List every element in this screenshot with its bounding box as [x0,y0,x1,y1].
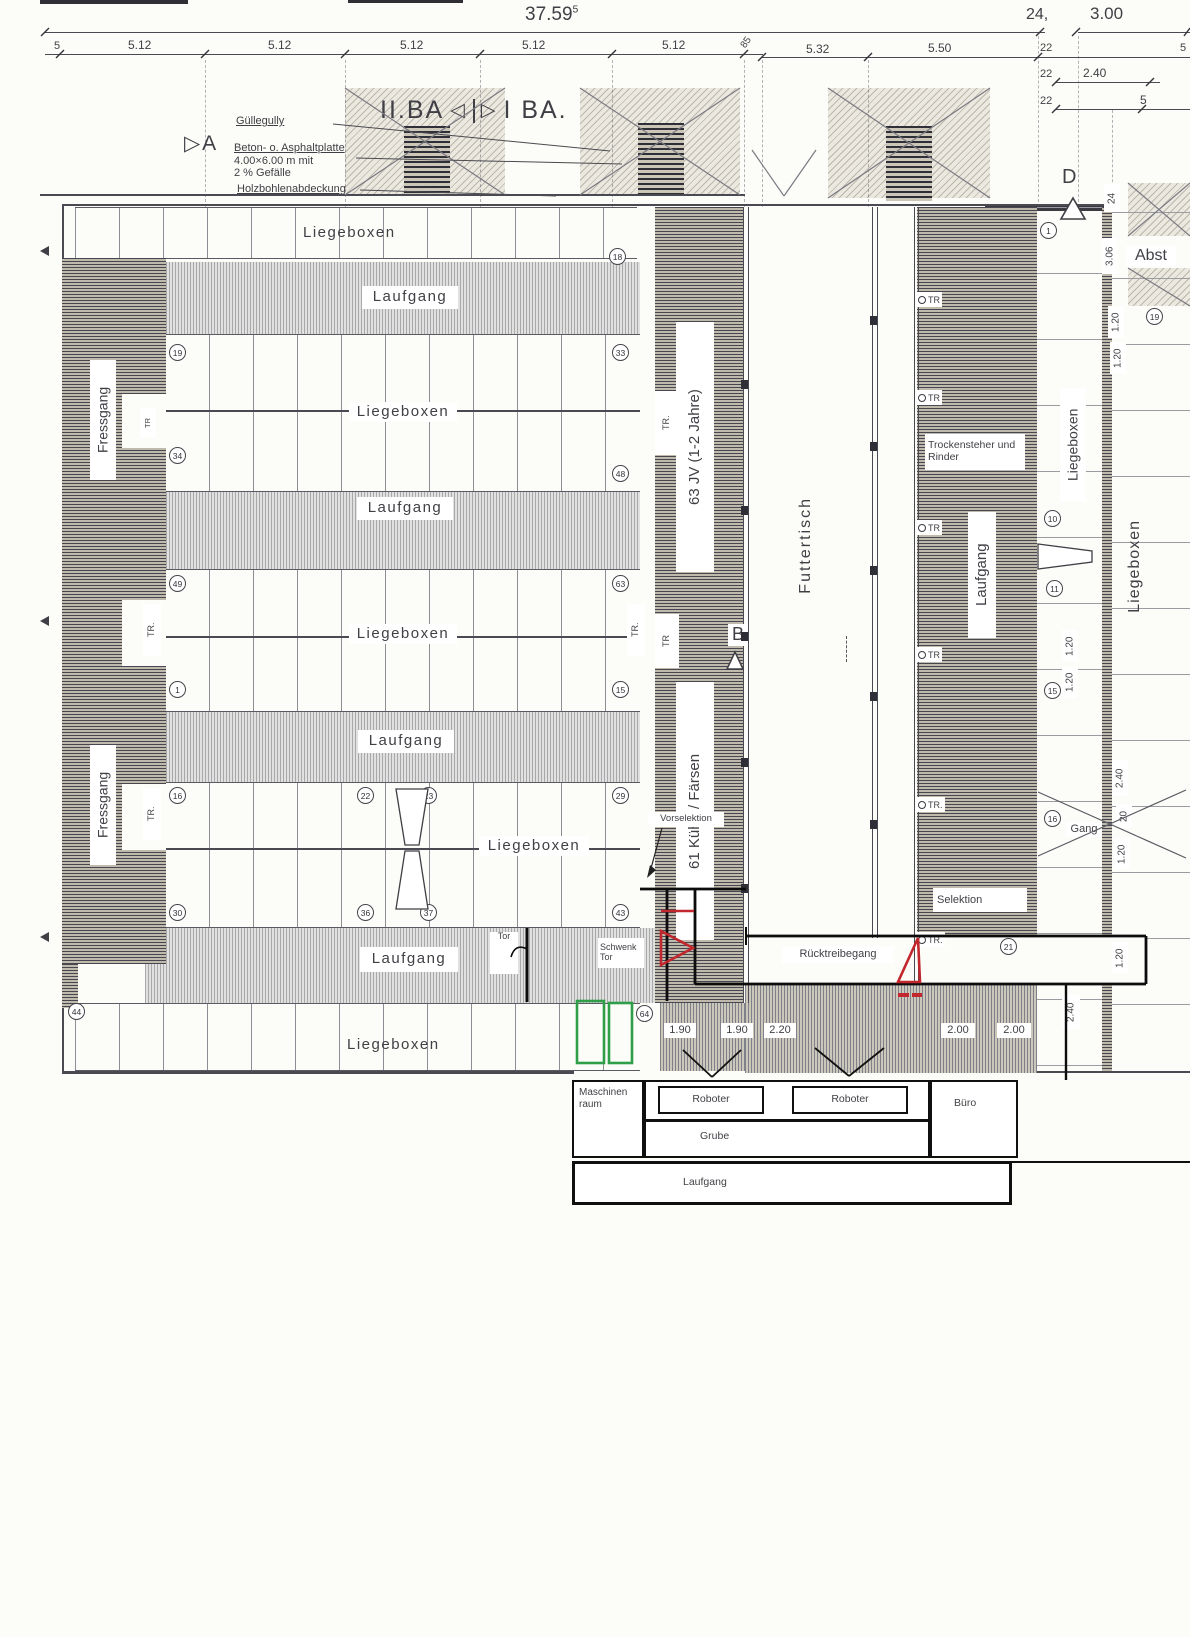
barn-top-wall [62,204,1104,206]
annex-right-line [1012,1161,1190,1163]
room-label-laufgang: Laufgang [357,497,453,520]
tr-post-icon [918,296,926,304]
grube-label: Grube [700,1130,729,1142]
schwenk-tor-box: Schwenk Tor [598,938,644,968]
dim-line-segments-2 [762,57,1190,58]
tr-label: TR [928,650,940,660]
grid-line [762,60,763,207]
dim-right: 1.20 [1108,306,1124,338]
annex-laufgang-box: Laufgang [572,1161,1012,1205]
dim-bottom: 2.00 [997,1023,1031,1038]
buero-label: Büro [954,1097,976,1109]
trockensteher-line2: Rinder [928,452,959,464]
bottom-right-line [1037,1071,1190,1073]
floor-plan-page: 37.595 24, 3.00 5 5.12 5.12 5.12 5.12 5.… [0,0,1190,1637]
barn-bottom-wall [62,1071,574,1074]
pos-circle: 16 [169,787,186,804]
chimney-3 [886,126,932,201]
scan-artifact [348,0,463,3]
pos-circle: 48 [612,465,629,482]
pos-circle: 30 [169,904,186,921]
fa-label: FA [404,868,413,878]
tr-marker: TR [916,390,942,405]
cut-triangle-right-icon: ▷ [481,100,498,122]
pos-circle: 1 [169,681,186,698]
pos-circle: 63 [612,575,629,592]
tr-post-icon [918,936,926,944]
scan-artifact [40,0,188,4]
cut-triangle-left-icon: ◁ [450,100,467,122]
dim-right: 3.06 [1102,238,1118,274]
dim-seg: 5.12 [662,38,685,52]
room-label-liegeboxen-right: Liegeboxen [1060,388,1086,502]
eave-line [40,194,745,196]
tr-marker: TR [655,614,679,668]
feed-fence-line [918,207,919,985]
construction-phase-heading: II.BA◁▷I BA. [380,96,568,126]
gang-label: Gang [1066,822,1102,837]
pos-circle: 11 [1046,580,1063,597]
dim-seg: 5 [1180,42,1186,55]
dim-right: 2.40 [1112,760,1128,796]
tr-label: TR [928,295,940,305]
maschinenraum-label: Maschinenraum [579,1087,627,1111]
cut-divider [473,99,475,123]
dim-right: 2.40 [1062,994,1080,1030]
note-beton-3: 2 % Gefälle [234,167,291,180]
fa-label: FA [1048,548,1059,559]
room-label-kuehe-faersen: 61 Kühe / Färsen [676,682,714,940]
pos-circle: 33 [612,344,629,361]
dim-24: 24, [1026,6,1048,25]
dim-line-total-right [1078,32,1190,33]
pos-circle: 15 [612,681,629,698]
pos-circle: 23 [420,787,437,804]
grube-divider [644,1119,930,1122]
dim-line-sub-2 [1055,109,1190,110]
section-marker-a: ▷A [184,132,216,157]
tr-marker: TR. [655,391,679,455]
pos-circle: 1 [1040,222,1057,239]
grid-line [612,60,613,207]
room-label-laufgang-right: Laufgang [968,512,996,638]
room-label-futtertisch: Futtertisch [797,497,816,594]
grid-line [868,60,869,207]
dim-seg-85: 85 [739,35,755,51]
pos-circle: 16 [1044,810,1061,827]
dim-line-total [45,32,1045,33]
section-triangle-icon: ▷ [184,132,200,157]
tr-marker: TR. [627,604,645,656]
tr-marker: TR. [143,604,161,656]
tr-post-icon [918,524,926,532]
pos-circle: 64 [636,1005,653,1022]
feed-fence-line [914,207,915,985]
tr-label: TR. [928,800,943,810]
tr-post-icon [918,651,926,659]
pos-circle: 21 [1000,938,1017,955]
dim-right: 1.20 [1110,342,1126,374]
pos-circle: 19 [169,344,186,361]
dim-seg: 5.12 [522,38,545,52]
schwenk-line2: Tor [600,953,613,963]
dim-seg: 5.32 [806,42,829,56]
dim-total: 37.595 [525,4,578,26]
room-label-fressgang: Fressgang [90,745,116,865]
pos-circle: 34 [169,447,186,464]
pos-circle: 37 [420,904,437,921]
room-label-liegeboxen: Liegeboxen [479,836,589,856]
pos-circle: 44 [68,1003,85,1020]
dim-sub: 5 [1140,93,1147,107]
buero-box: Büro [930,1080,1018,1158]
tr-marker: TR [140,408,156,438]
dim-seg: 5.12 [128,38,151,52]
tr-label: TR [928,393,940,403]
feed-fence-line [877,207,878,938]
grid-line [744,60,745,207]
dim-300: 3.00 [1090,4,1123,24]
ruecktreibegang-label: Rücktreibegang [782,946,894,963]
dim-sub: 22 [1040,68,1052,81]
dim-total-sup: 5 [573,5,579,16]
dim-right: 20 [1116,804,1132,828]
tr-label: TR. [928,935,943,945]
dim-bottom: 1.90 [664,1023,696,1038]
dim-right: 1.20 [1114,838,1130,870]
phase-2-label: II.BA [380,96,444,126]
room-label-laufgang: Laufgang [360,947,458,972]
dim-bottom: 2.00 [941,1023,975,1038]
dim-total-value: 37.59 [525,4,573,25]
tr-marker: TR. [916,932,945,947]
note-guellegully: Güllegully [236,115,284,128]
maschinenraum-line2: raum [579,1099,602,1110]
room-label-fressgang: Fressgang [90,360,116,480]
dim-seg: 5.12 [268,38,291,52]
futtertisch-corridor [743,207,917,936]
dim-seg: 5.12 [400,38,423,52]
pos-circle: 36 [357,904,374,921]
feed-fence-line [872,207,873,938]
left-margin-arrow-icons [40,246,49,942]
chimney-2 [638,123,684,195]
fa-label: FA [404,800,413,810]
room-label-liegeboxen: Liegeboxen [303,224,396,242]
tr-marker: TR [916,647,942,662]
dim-line-segments [45,54,763,55]
tr-post-icon [918,394,926,402]
maschinenraum-box: Maschinenraum [572,1080,644,1158]
roboter-box-1: Roboter [658,1086,764,1114]
grid-line [1038,36,1039,207]
maschinenraum-line1: Maschinen [579,1087,627,1098]
room-label-liegeboxen: Liegeboxen [347,1036,440,1054]
pos-circle: 10 [1044,510,1061,527]
fressgang-fence-hatch-end [62,964,78,1008]
vorselektion-label: Vorselektion [648,812,724,827]
tr-marker: TR. [916,797,945,812]
dim-right: 24 [1104,184,1120,212]
tr-marker: TR [916,292,942,307]
dim-seg: 5 [54,40,60,53]
pos-circle: 18 [609,248,626,265]
pos-circle: 49 [169,575,186,592]
tr-post-icon [918,801,926,809]
tr-marker: TR [916,520,942,535]
dim-bottom: 1.90 [721,1023,753,1038]
room-label-liegeboxen: Liegeboxen [349,624,457,644]
trockensteher-box: Trockensteher und Rinder [925,434,1025,470]
dim-seg: 5.50 [928,41,951,55]
section-a-label: A [202,132,216,157]
section-d-label: D [1062,166,1076,190]
room-label-jv: 63 JV (1-2 Jahre) [676,322,714,572]
annex-laufgang-label: Laufgang [683,1176,727,1188]
dim-right: 1.20 [1062,666,1078,698]
dim-bottom: 2.20 [764,1023,796,1038]
tr-marker: TR. [143,788,161,840]
grid-line [1078,36,1079,207]
roboter-box-2: Roboter [792,1086,908,1114]
selektion-box: Selektion [933,888,1027,912]
pos-circle: 15 [1044,682,1061,699]
pos-circle: 22 [357,787,374,804]
tor-box: Tor [490,932,518,974]
dim-line-sub-1 [1055,82,1160,83]
grid-line [480,60,481,207]
section-b-label: B [728,624,748,646]
room-label-liegeboxen-far-right: Liegeboxen [1126,520,1145,613]
feed-axis-dash [846,636,847,662]
feed-fence-line [743,207,744,1003]
note-beton-1: Beton- o. Asphaltplatte [234,142,345,155]
room-label-liegeboxen: Liegeboxen [349,402,457,422]
phase-1-label: I BA. [503,96,567,126]
dim-sub: 22 [1040,95,1052,108]
pos-circle: 43 [612,904,629,921]
dim-right: 1.20 [1112,942,1128,974]
feed-fence-line [748,207,749,1003]
dim-sub: 2.40 [1083,66,1106,80]
chimney-1 [404,126,450,196]
abstell-label: Abst [1126,246,1176,266]
room-label-laufgang: Laufgang [362,286,458,309]
pos-circle: 19 [1146,308,1163,325]
room-label-laufgang: Laufgang [358,730,454,753]
dim-seg: 22 [1040,42,1052,55]
dim-right: 1.20 [1062,630,1078,662]
pos-circle: 29 [612,787,629,804]
tr-label: TR [928,523,940,533]
